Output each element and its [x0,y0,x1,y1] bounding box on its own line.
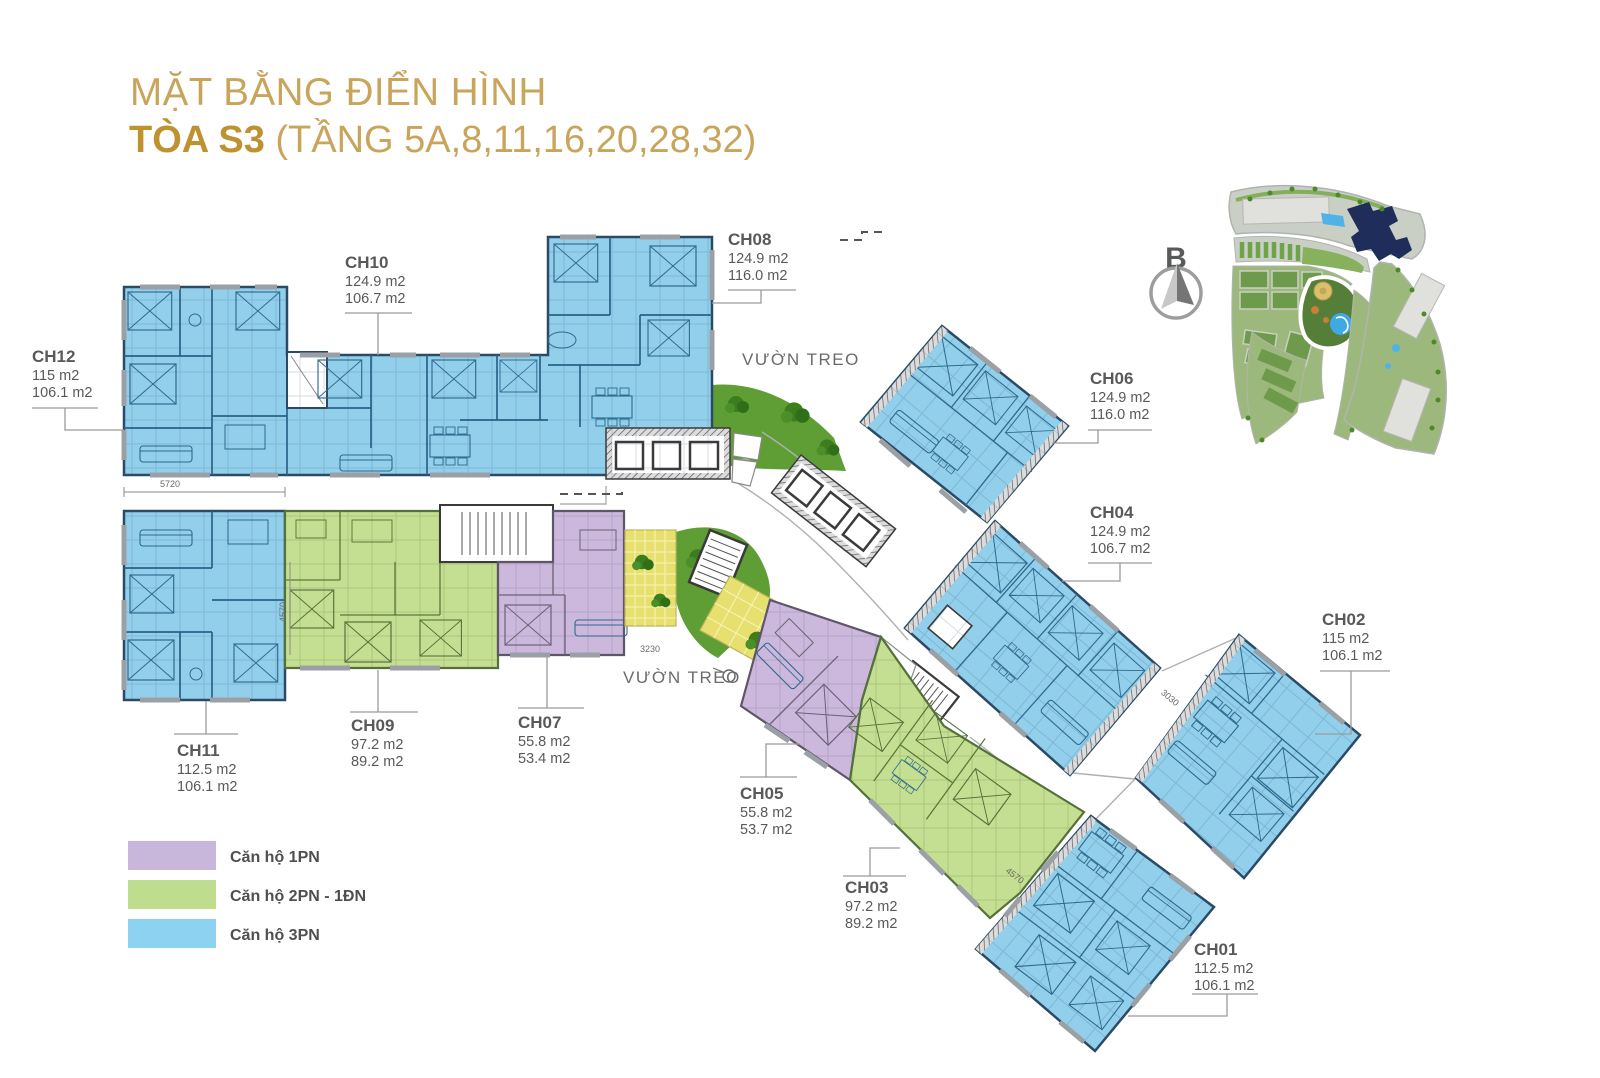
svg-text:115 m2: 115 m2 [32,368,79,384]
svg-text:3230: 3230 [640,644,660,654]
svg-text:124.9 m2: 124.9 m2 [1090,524,1150,540]
svg-text:106.1 m2: 106.1 m2 [32,385,92,401]
svg-text:Căn hộ 2PN - 1ĐN: Căn hộ 2PN - 1ĐN [230,888,366,905]
svg-text:89.2 m2: 89.2 m2 [845,916,897,932]
svg-text:CH05: CH05 [740,784,783,803]
svg-text:CH09: CH09 [351,716,394,735]
svg-text:Căn hộ 3PN: Căn hộ 3PN [230,927,320,944]
svg-text:116.0 m2: 116.0 m2 [1090,407,1149,423]
svg-text:106.7 m2: 106.7 m2 [1090,541,1150,557]
svg-text:124.9 m2: 124.9 m2 [1090,390,1150,406]
svg-text:CH03: CH03 [845,878,888,897]
svg-text:97.2 m2: 97.2 m2 [351,737,403,753]
svg-text:89.2 m2: 89.2 m2 [351,754,403,770]
svg-text:CH11: CH11 [177,741,220,760]
svg-text:55.8 m2: 55.8 m2 [518,734,570,750]
svg-text:TÒA S3 (TẦNG 5A,8,11,16,20,28,: TÒA S3 (TẦNG 5A,8,11,16,20,28,32) [129,117,756,161]
svg-text:4570: 4570 [278,602,288,622]
svg-text:106.1 m2: 106.1 m2 [1194,978,1254,994]
svg-text:Căn hộ 1PN: Căn hộ 1PN [230,849,320,866]
svg-text:3030: 3030 [1159,687,1181,708]
svg-text:53.4 m2: 53.4 m2 [518,751,570,767]
svg-text:VƯỜN TREO: VƯỜN TREO [742,350,860,369]
svg-text:CH04: CH04 [1090,503,1134,522]
svg-text:124.9 m2: 124.9 m2 [345,274,405,290]
svg-text:53.7 m2: 53.7 m2 [740,822,792,838]
svg-text:116.0 m2: 116.0 m2 [728,268,787,284]
svg-text:5720: 5720 [160,479,180,489]
svg-text:MẶT BẰNG ĐIỂN HÌNH: MẶT BẰNG ĐIỂN HÌNH [130,69,547,114]
svg-text:CH08: CH08 [728,230,771,249]
svg-text:106.1 m2: 106.1 m2 [177,779,237,795]
svg-text:CH01: CH01 [1194,940,1237,959]
svg-text:CH02: CH02 [1322,610,1365,629]
svg-text:112.5 m2: 112.5 m2 [1194,961,1253,977]
svg-text:112.5 m2: 112.5 m2 [177,762,236,778]
svg-text:CH10: CH10 [345,253,388,272]
svg-text:55.8 m2: 55.8 m2 [740,805,792,821]
svg-text:CH12: CH12 [32,347,75,366]
svg-text:115 m2: 115 m2 [1322,631,1369,647]
svg-text:106.7 m2: 106.7 m2 [345,291,405,307]
svg-text:CH06: CH06 [1090,369,1133,388]
svg-text:124.9 m2: 124.9 m2 [728,251,788,267]
svg-text:106.1 m2: 106.1 m2 [1322,648,1382,664]
svg-text:CH07: CH07 [518,713,561,732]
svg-text:97.2 m2: 97.2 m2 [845,899,897,915]
